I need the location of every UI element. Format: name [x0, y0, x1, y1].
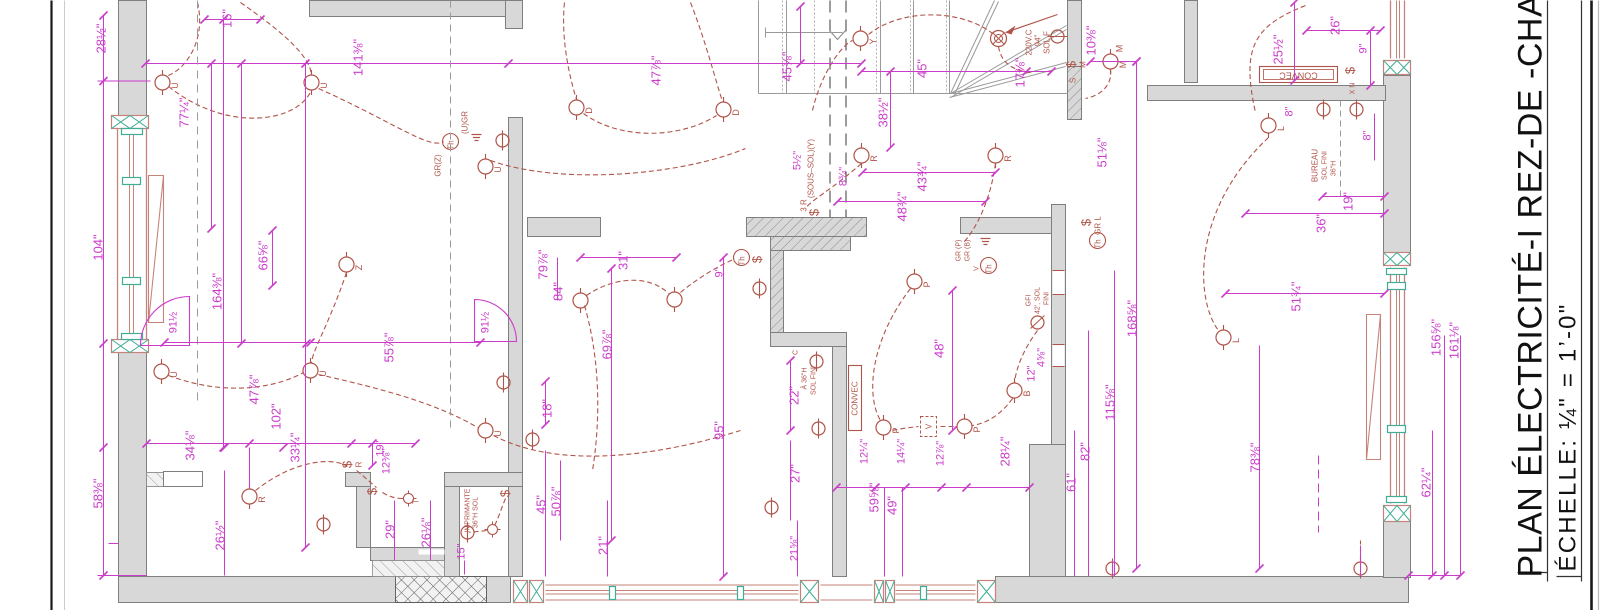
svg-text:66⅝": 66⅝" — [256, 240, 271, 270]
svg-text:14¼": 14¼" — [896, 439, 908, 464]
svg-text:S: S — [1069, 78, 1078, 83]
svg-text:SOL FINI: SOL FINI — [811, 366, 818, 395]
svg-text:102": 102" — [269, 403, 284, 430]
svg-text:69⅞": 69⅞" — [600, 329, 615, 359]
svg-text:Z: Z — [354, 264, 364, 270]
svg-text:21⅝": 21⅝" — [789, 536, 801, 561]
svg-text:V: V — [925, 423, 934, 429]
svg-text:55⅞": 55⅞" — [382, 332, 397, 362]
svg-text:$: $ — [365, 487, 380, 495]
svg-text:$: $ — [807, 208, 822, 216]
svg-text:42', SOL: 42', SOL — [1035, 287, 1042, 314]
svg-text:50⅞": 50⅞" — [549, 486, 564, 516]
svg-text:48¾": 48¾" — [895, 191, 910, 221]
svg-text:L: L — [1276, 126, 1286, 131]
svg-text:31": 31" — [616, 251, 631, 270]
svg-text:36"H SOL: 36"H SOL — [473, 497, 480, 528]
svg-text:P: P — [972, 426, 982, 432]
svg-text:CONVEC: CONVEC — [851, 381, 860, 415]
svg-text:FINI: FINI — [1044, 292, 1051, 305]
svg-text:V: V — [974, 266, 981, 271]
svg-text:12⅞": 12⅞" — [935, 441, 947, 466]
svg-text:141⅜": 141⅜" — [351, 39, 366, 77]
svg-text:BUREAU: BUREAU — [1311, 149, 1320, 183]
svg-text:77¼": 77¼" — [177, 97, 192, 127]
svg-text:95": 95" — [712, 421, 727, 440]
svg-text:26½": 26½" — [213, 520, 228, 550]
svg-text:51⅛": 51⅛" — [1095, 137, 1110, 167]
svg-text:28½": 28½" — [94, 23, 109, 53]
svg-text:U: U — [319, 82, 329, 89]
svg-text:GR L: GR L — [1094, 216, 1103, 235]
svg-text:168⅝": 168⅝" — [1125, 300, 1140, 338]
svg-text:C: C — [793, 350, 800, 355]
svg-text:29": 29" — [383, 520, 398, 539]
svg-text:Th: Th — [1094, 239, 1103, 248]
svg-text:5½": 5½" — [792, 151, 804, 170]
svg-text:GR(Z): GR(Z) — [434, 154, 443, 177]
svg-text:GR (B): GR (B) — [965, 240, 972, 262]
svg-text:Th: Th — [738, 256, 747, 265]
svg-text:R: R — [869, 155, 879, 162]
svg-text:$: $ — [750, 255, 765, 263]
svg-text:91½: 91½ — [168, 312, 180, 333]
svg-text:17⅜": 17⅜" — [1013, 57, 1028, 87]
svg-text:PLAN ÉLECTRICITÉ-I REZ-DE -CHA: PLAN ÉLECTRICITÉ-I REZ-DE -CHA — [1512, 0, 1550, 578]
svg-text:22": 22" — [787, 386, 802, 405]
svg-text:IMPRIMANTE: IMPRIMANTE — [465, 488, 472, 532]
svg-text:GR (P): GR (P) — [956, 240, 963, 262]
svg-text:47⅞": 47⅞" — [649, 55, 664, 85]
svg-text:82": 82" — [1078, 442, 1093, 461]
svg-text:220V.C: 220V.C — [1025, 29, 1034, 55]
svg-text:8": 8" — [1362, 130, 1374, 140]
svg-text:$: $ — [340, 460, 355, 468]
svg-text:Th: Th — [985, 264, 994, 273]
svg-text:U: U — [170, 82, 180, 89]
svg-text:33¼": 33¼" — [288, 432, 303, 462]
svg-text:12¼": 12¼" — [859, 439, 871, 464]
svg-text:D: D — [731, 109, 741, 116]
svg-text:78⅜": 78⅜" — [1248, 442, 1263, 472]
svg-text:R: R — [355, 461, 364, 467]
svg-text:10⅜": 10⅜" — [1084, 25, 1099, 55]
svg-text:59⅝": 59⅝" — [867, 482, 882, 512]
svg-text:25½": 25½" — [1271, 34, 1286, 64]
svg-text:8": 8" — [1284, 106, 1296, 116]
svg-text:91½: 91½ — [480, 312, 492, 333]
svg-text:28¼": 28¼" — [998, 436, 1013, 466]
svg-text:45⅜": 45⅜" — [780, 51, 795, 81]
svg-text:26": 26" — [1328, 16, 1343, 35]
svg-text:49": 49" — [885, 496, 900, 515]
svg-text:ÉCHELLE: ¼" = 1’-0": ÉCHELLE: ¼" = 1’-0" — [1555, 303, 1582, 572]
svg-text:38½": 38½" — [876, 97, 891, 127]
svg-text:M: M — [1115, 45, 1125, 53]
svg-text:12⅜": 12⅜" — [381, 449, 393, 474]
svg-text:R: R — [257, 496, 267, 503]
svg-text:B: B — [1022, 390, 1032, 396]
svg-text:SOL F: SOL F — [1043, 31, 1052, 54]
svg-text:164⅜": 164⅜" — [210, 273, 225, 311]
svg-text:161⅛": 161⅛" — [1447, 322, 1462, 360]
svg-text:$: $ — [1343, 66, 1358, 74]
svg-text:(SOUS–SOL)(Y): (SOUS–SOL)(Y) — [807, 139, 816, 198]
svg-text:M: M — [1079, 61, 1088, 68]
svg-text:84": 84" — [551, 282, 566, 301]
svg-text:GFI: GFI — [1026, 295, 1033, 307]
svg-text:45": 45" — [534, 495, 549, 514]
svg-text:115⅝": 115⅝" — [1103, 384, 1118, 421]
svg-text:18": 18" — [540, 399, 555, 418]
svg-text:51¾": 51¾" — [1289, 281, 1304, 311]
svg-text:62¼": 62¼" — [1419, 467, 1434, 497]
svg-text:48": 48" — [932, 339, 947, 358]
svg-text:P: P — [922, 281, 932, 287]
svg-text:27": 27" — [788, 464, 803, 483]
svg-text:U: U — [493, 166, 503, 173]
svg-text:$: $ — [1079, 218, 1094, 226]
svg-text:CONVEC: CONVEC — [1279, 71, 1318, 81]
svg-text:36": 36" — [1314, 214, 1329, 233]
svg-text:L: L — [1231, 338, 1241, 343]
svg-text:15": 15" — [456, 543, 468, 559]
svg-text:47⅞": 47⅞" — [247, 374, 262, 404]
svg-text:D: D — [584, 107, 594, 114]
svg-text:36"H: 36"H — [1331, 161, 1338, 176]
svg-text:58⅜": 58⅜" — [91, 478, 106, 508]
svg-text:21": 21" — [596, 536, 611, 555]
svg-text:45": 45" — [915, 59, 930, 78]
svg-text:19": 19" — [1341, 192, 1356, 211]
svg-text:Y: Y — [868, 38, 878, 44]
svg-text:34⅛": 34⅛" — [183, 430, 198, 460]
svg-text:61": 61" — [1064, 473, 1079, 492]
svg-text:16": 16" — [220, 9, 235, 28]
svg-text:79⅞": 79⅞" — [536, 249, 551, 279]
svg-text:8¾": 8¾" — [838, 167, 850, 186]
svg-text:SOL FINI: SOL FINI — [1322, 151, 1329, 180]
svg-text:X N: X N — [1350, 83, 1357, 95]
svg-text:43¾": 43¾" — [915, 161, 930, 191]
svg-text:T: T — [412, 499, 421, 504]
svg-text:104": 104" — [91, 234, 106, 261]
svg-text:$: $ — [498, 489, 513, 497]
svg-text:94": 94" — [1034, 34, 1043, 46]
svg-text:9": 9" — [1358, 43, 1370, 53]
svg-text:4⅝": 4⅝" — [1036, 348, 1048, 367]
svg-text:R: R — [1003, 155, 1013, 162]
svg-text:26⅛": 26⅛" — [419, 517, 434, 547]
svg-text:$: $ — [1064, 60, 1079, 68]
svg-text:(U)GR: (U)GR — [461, 111, 470, 134]
svg-text:156⅝": 156⅝" — [1429, 319, 1444, 357]
